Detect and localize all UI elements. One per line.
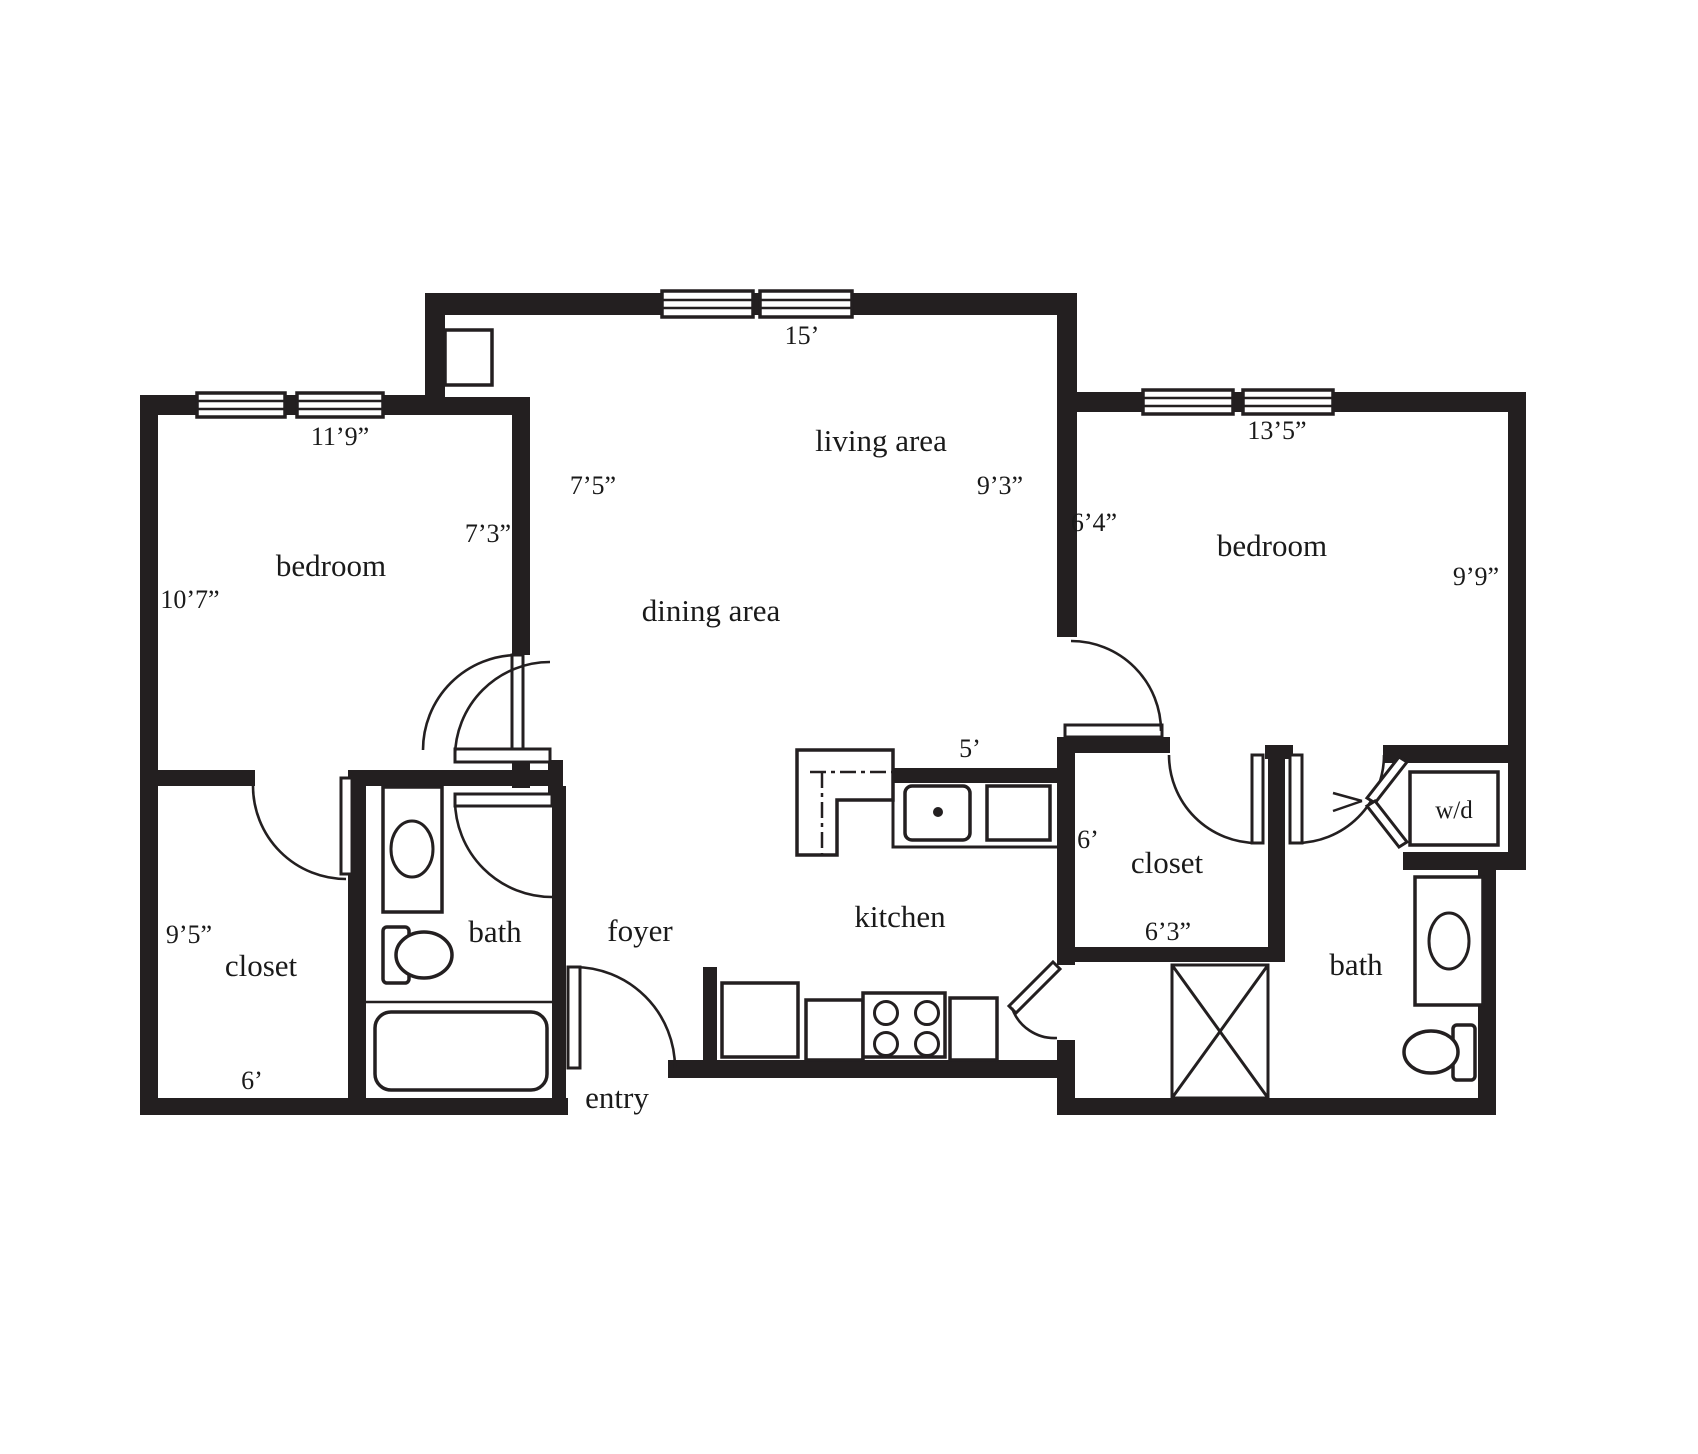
toilet [1404, 1025, 1475, 1080]
wall [1057, 1098, 1496, 1115]
foyer-bath-door [455, 794, 552, 897]
windows [197, 291, 1333, 417]
dim-closet-right-depth: 6’ [1077, 825, 1099, 854]
kitchen-island [797, 750, 893, 855]
wall [425, 397, 530, 415]
window [197, 393, 285, 417]
floor-plan: w/d bedroom 11’9” 10’7” 7’3” dining area… [0, 0, 1698, 1454]
dim-living-window: 15’ [785, 321, 820, 350]
dining-foyer-door [455, 662, 550, 762]
entry-door [568, 967, 675, 1068]
label-foyer: foyer [607, 913, 673, 948]
dim-bedroom-right-west: 6’4” [1071, 508, 1117, 537]
label-bedroom-left: bedroom [276, 548, 386, 583]
wall [1508, 392, 1526, 870]
wall [1057, 947, 1285, 962]
sink-drain [933, 807, 943, 817]
refrigerator [722, 983, 798, 1057]
dim-closet-left-width: 6’ [241, 1066, 263, 1095]
window [1143, 390, 1233, 414]
counter-section [950, 998, 997, 1060]
window [297, 393, 383, 417]
bath-right-fixtures: w/d [1172, 772, 1498, 1098]
washer-dryer-label: w/d [1435, 797, 1473, 824]
utility-x-box [1172, 965, 1268, 1098]
wall-niche [445, 330, 492, 385]
label-dining-area: dining area [642, 593, 781, 628]
dim-bedroom-left-width: 11’9” [311, 422, 369, 451]
label-bath-left: bath [468, 914, 522, 949]
dim-closet-right-width: 6’3” [1145, 917, 1191, 946]
dim-kitchen-counter: 5’ [959, 734, 981, 763]
wall [1403, 852, 1526, 870]
kitchen-fixtures [445, 330, 1057, 1060]
range-4-burner [863, 993, 945, 1057]
kitchen-half-wall [893, 768, 1057, 783]
label-kitchen: kitchen [854, 899, 946, 934]
wall [668, 1060, 1075, 1078]
washer-dryer: w/d [1410, 772, 1498, 845]
label-closet-left: closet [225, 948, 298, 983]
toilet [383, 927, 452, 983]
wall [140, 395, 445, 415]
dim-bedroom-left-east: 7’3” [465, 519, 511, 548]
wall [140, 395, 158, 1115]
dim-dining-west: 7’5” [570, 471, 616, 500]
vanity-sink [383, 787, 442, 912]
wall [703, 967, 717, 1062]
dim-bedroom-right-width: 13’5” [1247, 416, 1306, 445]
window [1243, 390, 1333, 414]
wall [1057, 737, 1075, 965]
bath-left-fixtures [366, 787, 552, 1090]
label-closet-right: closet [1131, 845, 1204, 880]
wall [512, 413, 530, 655]
label-bedroom-right: bedroom [1217, 528, 1327, 563]
dim-closet-left-depth: 9’5” [166, 920, 212, 949]
label-entry: entry [585, 1080, 649, 1115]
closet-left-door [253, 778, 352, 879]
dim-bedroom-right-east: 9’9” [1453, 562, 1499, 591]
dim-living-east: 9’3” [977, 471, 1023, 500]
dim-bedroom-left-depth: 10’7” [160, 585, 219, 614]
wall [140, 770, 255, 786]
bedroom-right-door [1065, 641, 1162, 737]
closet-right-door [1169, 755, 1263, 843]
wall [1268, 753, 1285, 953]
window [760, 291, 852, 317]
wall [1057, 293, 1077, 637]
bathtub [366, 1002, 552, 1090]
label-living-area: living area [815, 423, 947, 458]
wall [1403, 745, 1526, 763]
label-bath-right: bath [1329, 947, 1383, 982]
counter-section [987, 786, 1050, 840]
wall [348, 770, 563, 786]
floor-plan-drawing: w/d bedroom 11’9” 10’7” 7’3” dining area… [0, 0, 1698, 1454]
wall [1057, 737, 1170, 753]
wall [552, 786, 566, 1115]
vanity-sink [1415, 877, 1483, 1005]
window [662, 291, 753, 317]
utility-corner-door [1009, 962, 1060, 1038]
wall [1057, 1040, 1075, 1115]
counter-section [806, 1000, 863, 1060]
